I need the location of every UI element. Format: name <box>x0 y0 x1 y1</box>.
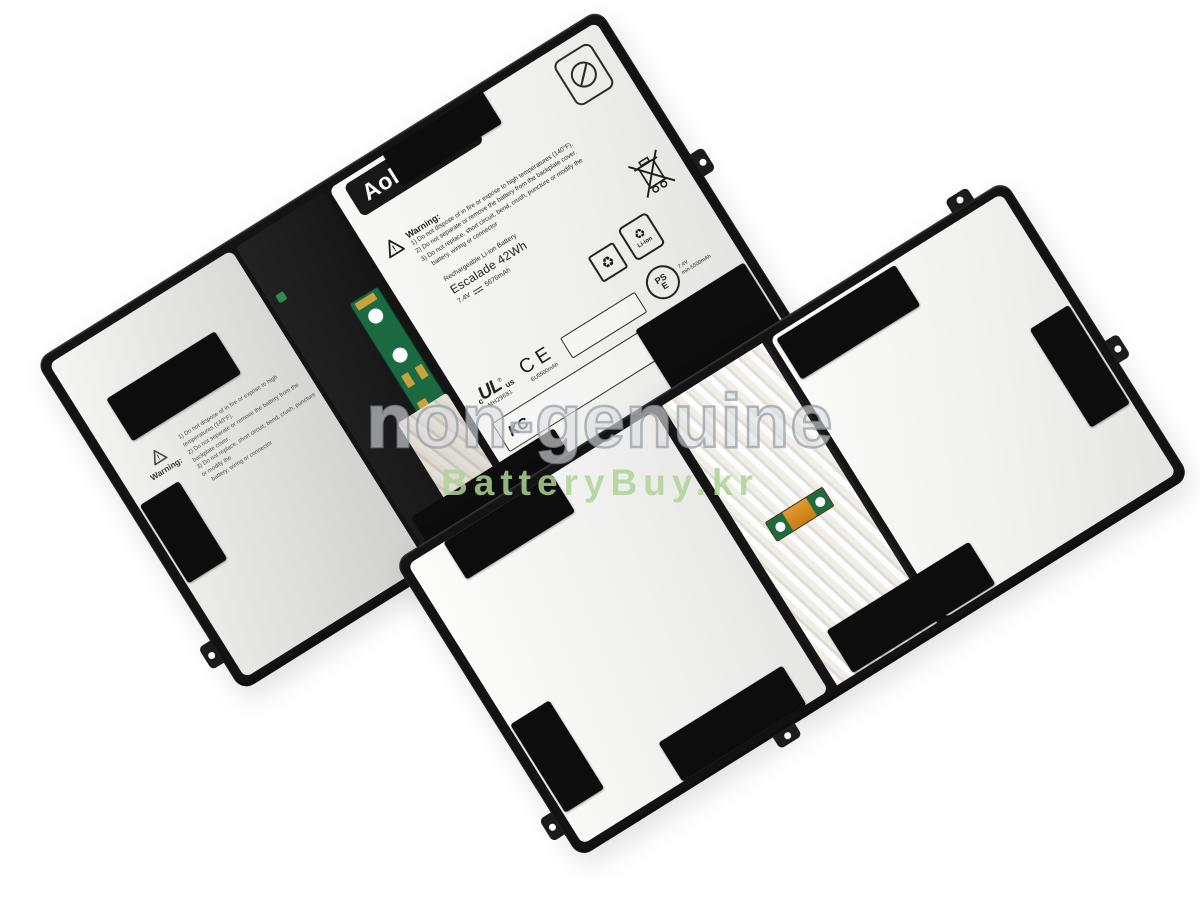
product-photo-stage: ! Warning: 1) Do not dispose of in fire … <box>0 0 1200 900</box>
prohibition-circle <box>566 57 602 93</box>
small-pcb-component <box>275 291 287 303</box>
pse-rating: 7.4V min-5500mAh <box>677 247 713 277</box>
pcb-hole <box>813 495 827 509</box>
ul-certification-mark: c UL ® us MH29681 <box>471 369 520 414</box>
screw-hole <box>547 822 557 832</box>
kc-mark: KC <box>505 414 532 439</box>
ce-certification-mark: CE EU5500mAh <box>515 341 562 385</box>
screw-hole <box>1113 344 1123 354</box>
mounting-ear <box>1104 334 1130 364</box>
weee-crossed-bin-icon <box>623 144 680 203</box>
mounting-ear <box>689 147 715 177</box>
screw-hole <box>698 157 708 167</box>
mounting-ear <box>198 640 224 670</box>
prohibition-slash <box>581 68 586 82</box>
screw-hole <box>207 650 217 660</box>
cell-warning-head: ! Warning: <box>139 440 184 483</box>
do-not-disassemble-icon <box>551 41 616 108</box>
pcb-gold-pad <box>415 364 429 380</box>
mounting-ear <box>539 812 565 842</box>
pcb-hole <box>390 345 411 366</box>
recycle-square-icon: ♻ <box>587 242 628 283</box>
mounting-ear <box>945 187 975 213</box>
pse-letter: E <box>660 281 669 291</box>
warning-triangle-icon: ! <box>380 234 406 260</box>
recycle-glyph: ♻ <box>598 251 619 273</box>
ce-letters: CE <box>515 341 558 378</box>
li-ion-recycle-icon: ♻ Li-ion <box>617 212 666 262</box>
pcb-gold-pad <box>401 372 415 388</box>
connector-pcb <box>765 486 835 542</box>
screw-hole <box>955 195 965 205</box>
pcb-hole <box>773 520 787 534</box>
screw-hole <box>782 731 792 741</box>
dc-symbol-icon <box>473 286 484 295</box>
pcb-hole <box>365 306 386 327</box>
mounting-ear <box>772 723 802 749</box>
ul-suffix: us <box>504 378 516 390</box>
